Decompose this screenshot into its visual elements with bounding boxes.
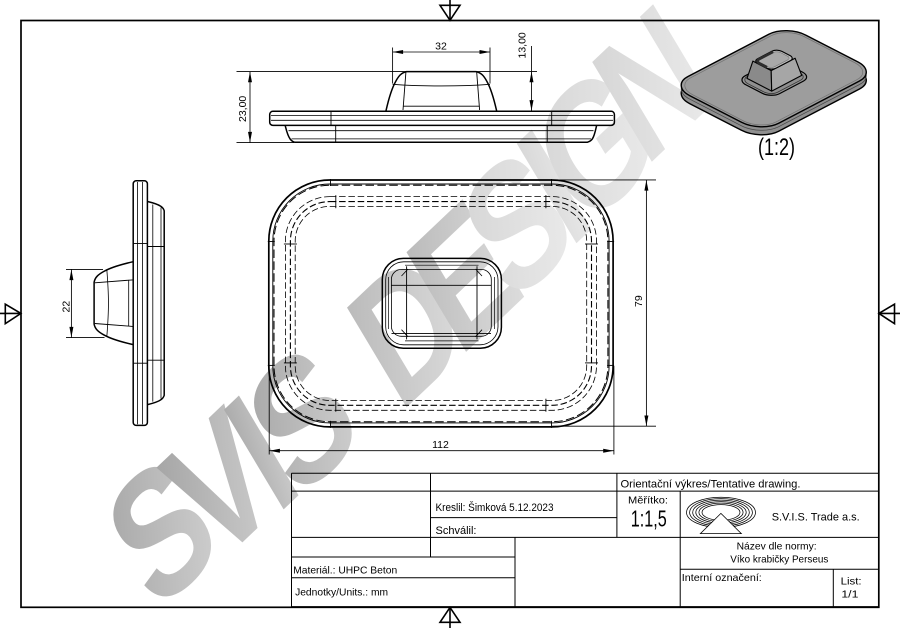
svg-text:23,00: 23,00 — [237, 96, 249, 122]
svg-text:List:: List: — [841, 576, 862, 588]
svg-text:Schválil:: Schválil: — [436, 525, 477, 537]
svg-text:13,00: 13,00 — [517, 32, 529, 58]
svg-text:1:1,5: 1:1,5 — [631, 506, 667, 532]
svg-text:Orientační výkres/Tentative dr: Orientační výkres/Tentative drawing. — [621, 479, 801, 491]
svg-text:112: 112 — [432, 439, 449, 451]
svg-text:32: 32 — [435, 41, 447, 53]
svg-text:Materiál.: UHPC Beton: Materiál.: UHPC Beton — [293, 565, 397, 577]
svg-text:Víko krabičky Perseus: Víko krabičky Perseus — [730, 554, 828, 566]
svg-text:Název dle normy:: Název dle normy: — [737, 541, 817, 553]
svg-text:1/1: 1/1 — [841, 589, 858, 601]
svg-text:Kreslil: Šimková 5.12.2023: Kreslil: Šimková 5.12.2023 — [436, 501, 554, 514]
svg-text:(1:2): (1:2) — [758, 134, 795, 161]
svg-text:Interní označení:: Interní označení: — [682, 572, 762, 584]
svg-text:Jednotky/Units.: mm: Jednotky/Units.: mm — [295, 587, 388, 599]
svg-text:79: 79 — [633, 295, 645, 307]
svg-text:22: 22 — [60, 301, 72, 313]
svg-text:S.V.I.S. Trade a.s.: S.V.I.S. Trade a.s. — [772, 512, 860, 524]
